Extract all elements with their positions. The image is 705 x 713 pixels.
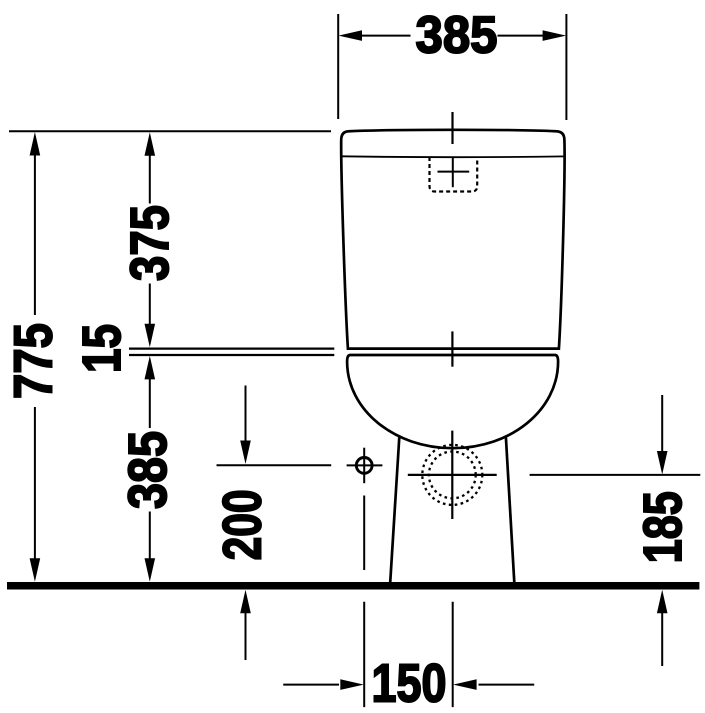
svg-text:385: 385 xyxy=(416,6,498,64)
svg-text:15: 15 xyxy=(72,324,132,373)
svg-text:185: 185 xyxy=(633,491,693,563)
svg-text:150: 150 xyxy=(372,654,447,713)
svg-text:775: 775 xyxy=(4,323,64,399)
svg-text:385: 385 xyxy=(118,431,178,509)
svg-text:375: 375 xyxy=(120,205,180,281)
svg-text:200: 200 xyxy=(212,489,272,560)
